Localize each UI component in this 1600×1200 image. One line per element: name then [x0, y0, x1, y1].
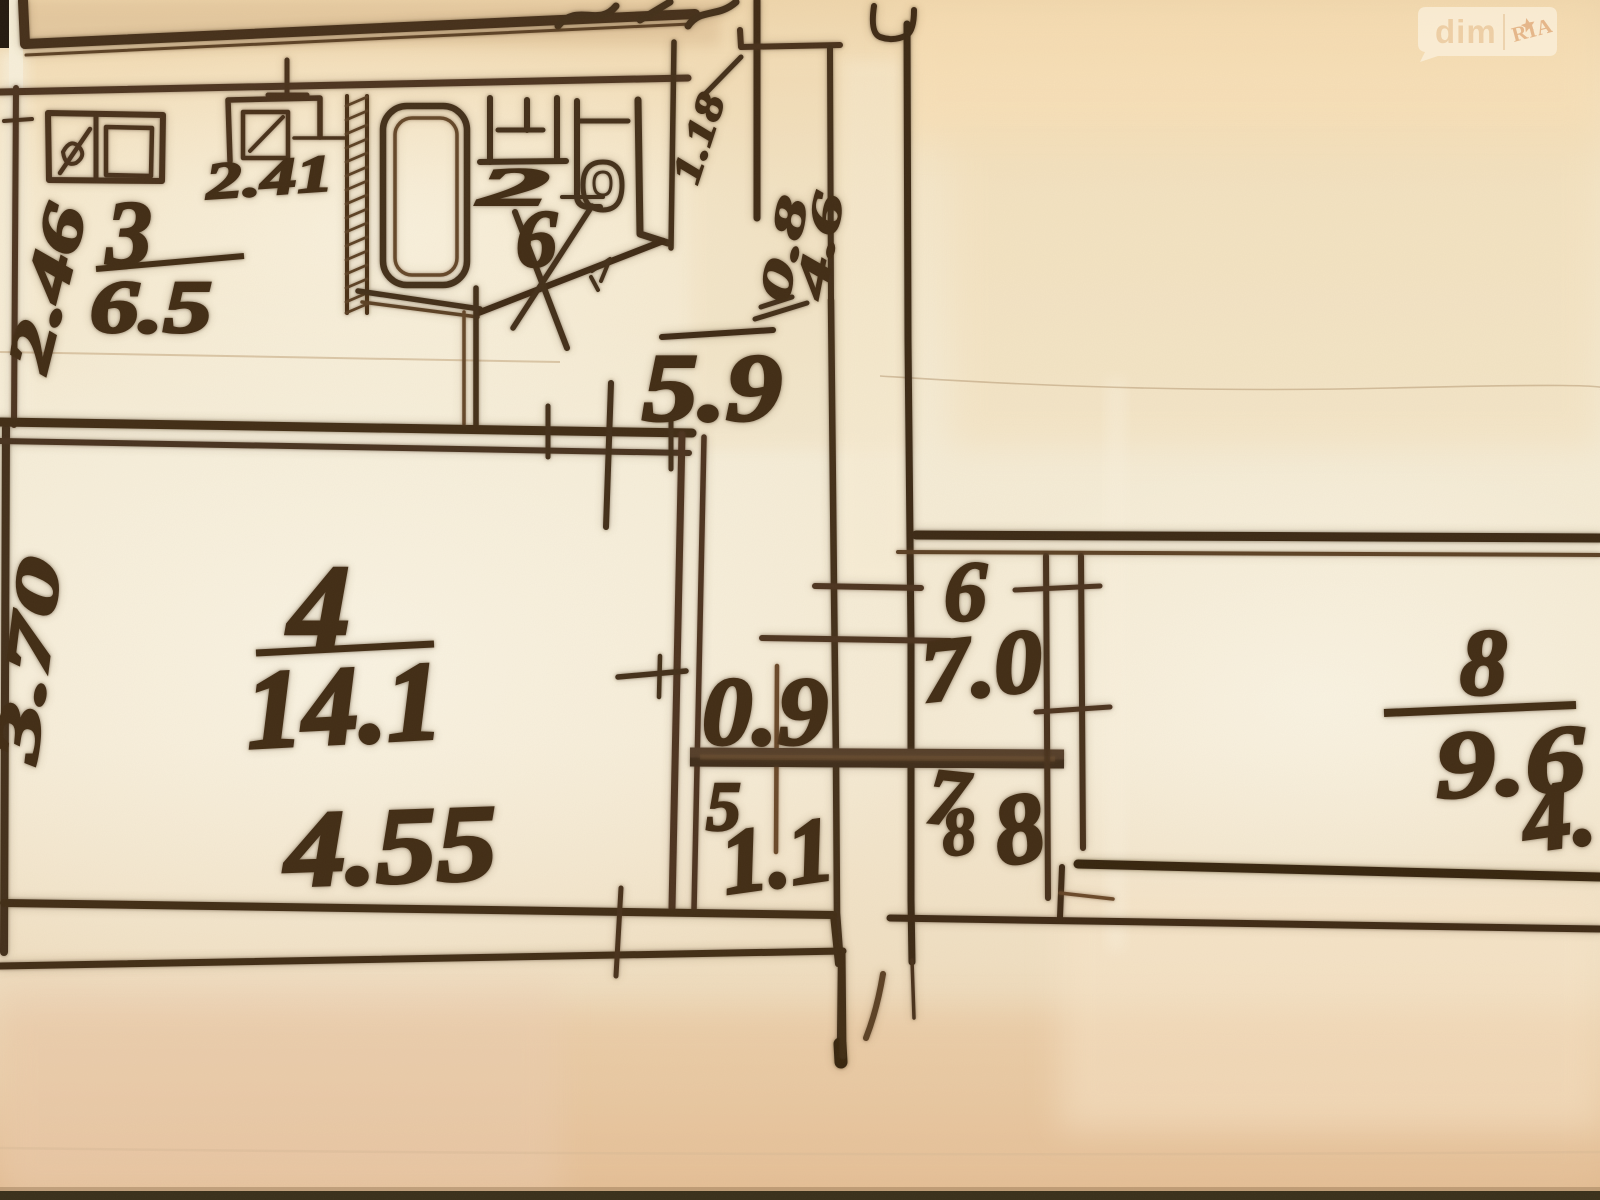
svg-text:dim: dim [1435, 13, 1497, 50]
